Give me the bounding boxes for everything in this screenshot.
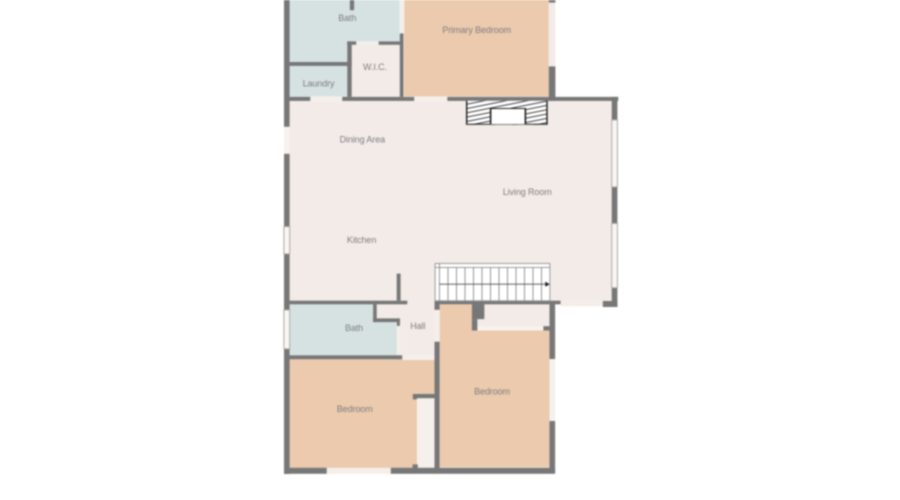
svg-text:W.I.C.: W.I.C. xyxy=(363,62,387,72)
svg-text:Hall: Hall xyxy=(410,321,425,331)
svg-text:Dining Area: Dining Area xyxy=(340,135,386,145)
svg-text:Kitchen: Kitchen xyxy=(347,235,376,245)
svg-text:Bath: Bath xyxy=(345,323,363,333)
svg-text:Bedroom: Bedroom xyxy=(474,386,510,396)
svg-text:Living Room: Living Room xyxy=(503,187,552,197)
svg-text:Laundry: Laundry xyxy=(303,79,335,89)
svg-text:Bath: Bath xyxy=(338,13,356,23)
svg-text:Bedroom: Bedroom xyxy=(337,404,373,414)
svg-text:Primary Bedroom: Primary Bedroom xyxy=(442,25,511,35)
